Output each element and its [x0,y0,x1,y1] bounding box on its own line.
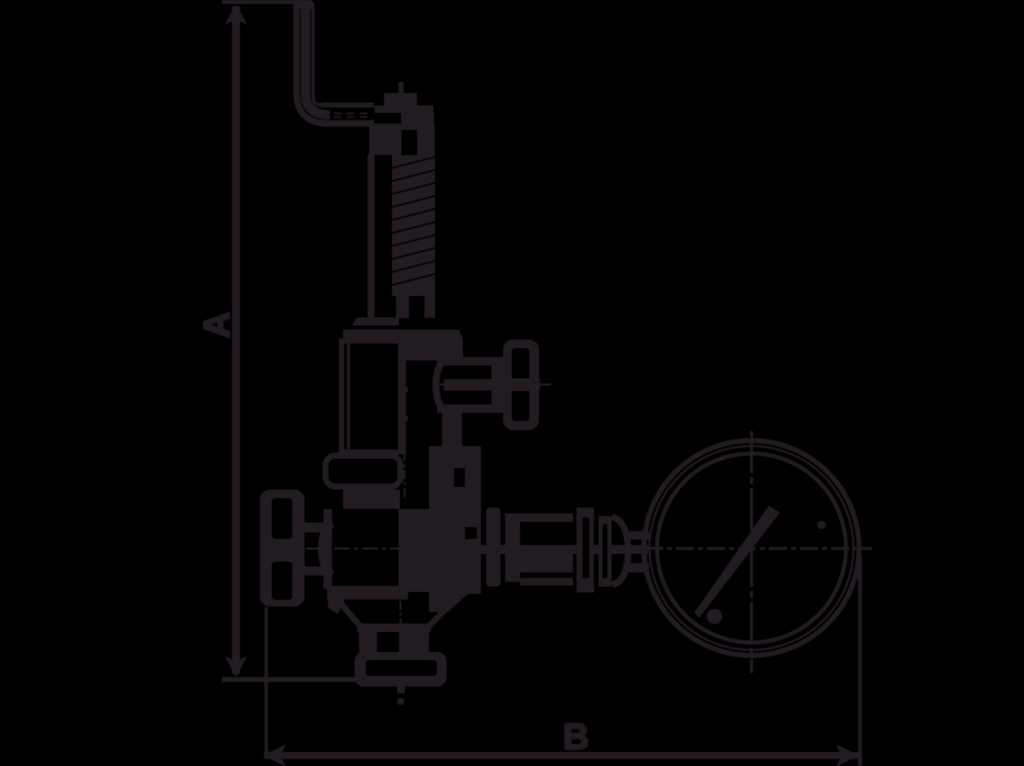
svg-text:A: A [196,312,237,338]
svg-text:B: B [563,716,589,757]
